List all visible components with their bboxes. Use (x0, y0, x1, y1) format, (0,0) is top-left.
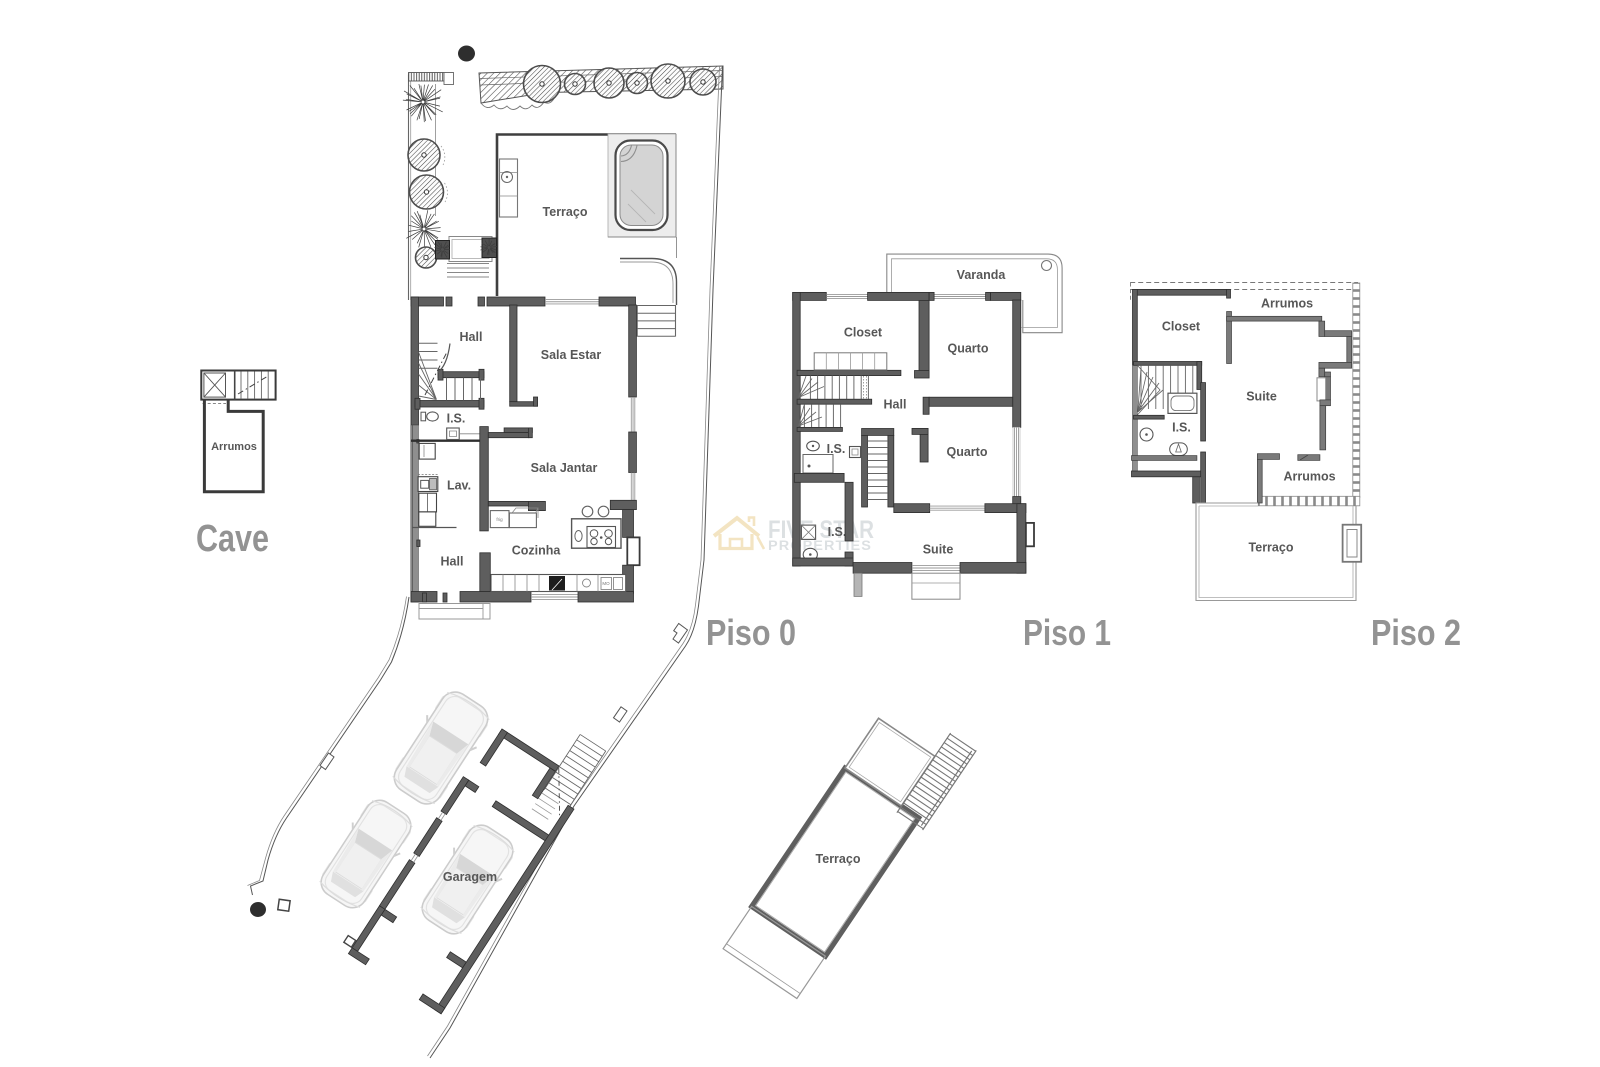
svg-text:Cozinha: Cozinha (512, 544, 562, 558)
svg-text:Quarto: Quarto (948, 342, 989, 356)
svg-text:Terraço: Terraço (543, 205, 588, 219)
svg-text:Closet: Closet (844, 326, 883, 340)
svg-text:Terraço: Terraço (816, 852, 861, 866)
svg-text:Arrumos: Arrumos (1261, 297, 1313, 311)
svg-text:Suite: Suite (1246, 390, 1277, 404)
svg-text:I.S.: I.S. (1172, 421, 1191, 435)
svg-text:Hall: Hall (441, 555, 464, 569)
svg-text:Cave: Cave (196, 518, 269, 560)
svg-text:Arrumos: Arrumos (211, 441, 257, 453)
svg-text:MO: MO (602, 581, 610, 586)
svg-text:Quarto: Quarto (947, 445, 988, 459)
svg-text:Terraço: Terraço (1249, 541, 1294, 555)
svg-text:Closet: Closet (1162, 320, 1201, 334)
svg-text:Varanda: Varanda (957, 268, 1007, 282)
svg-text:Suite: Suite (923, 543, 954, 557)
svg-text:Arrumos: Arrumos (1283, 470, 1335, 484)
svg-text:I.S.: I.S. (447, 412, 466, 426)
svg-text:PROPERTIES: PROPERTIES (768, 538, 872, 553)
svg-text:Hall: Hall (460, 330, 483, 344)
svg-text:Piso 1: Piso 1 (1023, 612, 1111, 653)
svg-text:I.S.: I.S. (828, 525, 847, 539)
svg-text:I.S.: I.S. (827, 442, 846, 456)
svg-text:Piso 0: Piso 0 (706, 612, 796, 653)
svg-text:Garagem: Garagem (443, 870, 497, 884)
svg-text:Lav.: Lav. (447, 479, 471, 493)
svg-text:frig: frig (496, 517, 503, 522)
svg-text:Sala Jantar: Sala Jantar (531, 461, 598, 475)
svg-text:Hall: Hall (884, 398, 907, 412)
svg-text:Sala Estar: Sala Estar (541, 348, 602, 362)
svg-text:Piso 2: Piso 2 (1371, 612, 1461, 653)
